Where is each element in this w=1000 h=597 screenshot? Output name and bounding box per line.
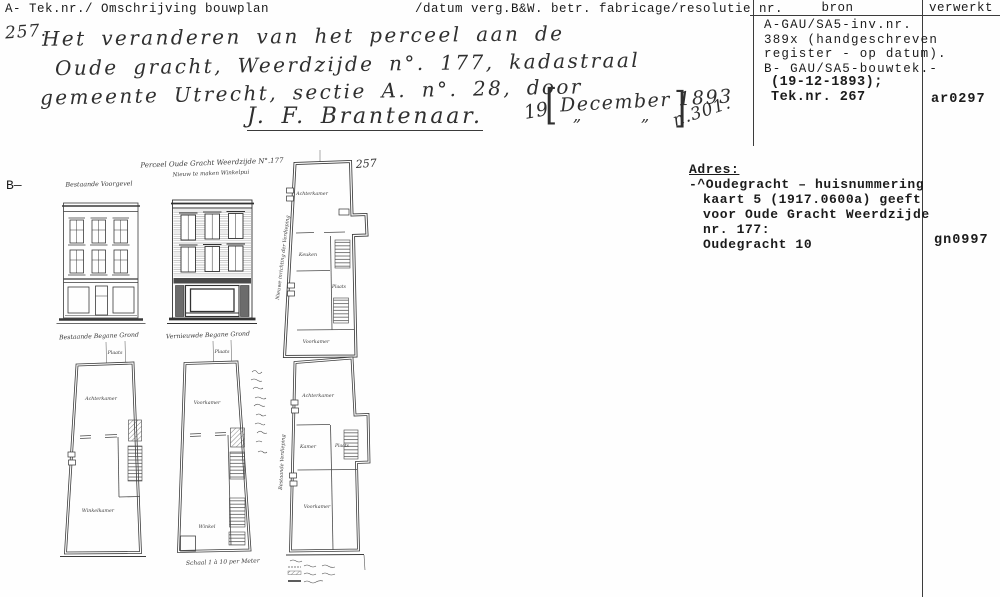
facade-new xyxy=(167,200,257,324)
facade-new-windows-row1 xyxy=(179,212,245,241)
archive-card: A- Tek.nr./ Omschrijving bouwplan /datum… xyxy=(0,0,1000,597)
caption-plan-existing: Bestaande Begane Grond xyxy=(58,332,139,342)
facade-new-shopfront xyxy=(174,278,252,317)
room-label: Achterkamer xyxy=(84,396,117,402)
bron-line: B- GAU/SA5-bouwtek.- xyxy=(764,62,947,77)
handwritten-scribbles xyxy=(251,371,267,454)
adres-block: Adres: -^Oudegracht – huisnummering kaar… xyxy=(689,162,930,252)
adres-line: voor Oude Gracht Weerdzijde xyxy=(689,207,930,222)
plan-ground-existing: Plaats Achterkamer Winkelkamer xyxy=(60,341,146,557)
handwritten-signature: J. F. Brantenaar. xyxy=(247,104,483,131)
room-label: Plaats xyxy=(331,284,347,290)
drawing-sheet: Bestaande Voorgevel xyxy=(0,145,410,597)
adres-heading: Adres: xyxy=(689,162,930,177)
ditto-mark-2: „ xyxy=(641,106,649,125)
drawing-legend xyxy=(288,560,335,583)
bron-line-bold: (19-12-1893); xyxy=(764,76,947,91)
plan-upper-storey: Achterkamer Keuken Plaats Voorkamer Nieu… xyxy=(275,150,367,357)
plan-upper-existing: Achterkamer Kamer Plaats Voorkamer xyxy=(286,358,369,570)
sheet-number-handwritten: 257 xyxy=(354,157,377,172)
room-label: Winkel xyxy=(199,524,216,530)
column-header-bron: bron xyxy=(753,1,922,15)
room-label: Keuken xyxy=(298,252,317,258)
room-label: Achterkamer xyxy=(295,191,328,197)
room-label: Achterkamer xyxy=(301,393,334,399)
facade-existing-windows-row1 xyxy=(68,218,130,245)
adres-line: nr. 177: xyxy=(689,222,930,237)
verwerkt-code-b: gn0997 xyxy=(934,233,989,248)
scale-note: Schaal 1 à 10 per Meter xyxy=(186,557,261,567)
header-left: A- Tek.nr./ Omschrijving bouwplan xyxy=(5,2,269,16)
facade-existing xyxy=(57,203,146,324)
verwerkt-code-a: ar0297 xyxy=(931,92,986,107)
header-underline xyxy=(750,15,1000,16)
room-label: Voorkamer xyxy=(304,504,331,510)
bron-line-bold: Tek.nr. 267 xyxy=(764,91,947,106)
plan-ground-renewed: Plaats Voorkamer Winkel Schaal 1 à 10 pe… xyxy=(179,340,261,567)
header-middle: /datum verg.B&W. betr. fabricage/resolut… xyxy=(415,2,783,16)
column-header-verwerkt: verwerkt xyxy=(922,1,1000,15)
room-label: Winkelkamer xyxy=(82,508,115,514)
plaats-label: Plaats xyxy=(214,349,230,355)
caption-facade-existing: Bestaande Voorgevel xyxy=(64,180,132,188)
plaats-label: Plaats xyxy=(107,350,123,356)
divider-bron-left xyxy=(753,0,754,146)
plan-bottom-vertical-label: Bestaande Verdieping xyxy=(278,434,287,491)
room-label: Plaats xyxy=(334,443,350,449)
bron-line: 389x (handgeschreven xyxy=(764,33,947,48)
bracket-open: [ xyxy=(545,80,557,129)
drawing-title: Perceel Oude Gracht Weerdzijde N°.177 xyxy=(139,156,284,169)
bron-line: A-GAU/SA5-inv.nr. xyxy=(764,18,947,33)
room-label: Voorkamer xyxy=(303,339,330,345)
ditto-mark-1: „ xyxy=(573,106,581,125)
facade-existing-windows-row2 xyxy=(68,250,130,275)
adres-line: Oudegracht 10 xyxy=(689,237,930,252)
adres-line: kaart 5 (1917.0600a) geeft xyxy=(689,192,930,207)
facade-existing-shopfront xyxy=(64,279,139,316)
adres-line: -^Oudegracht – huisnummering xyxy=(689,177,930,192)
room-label: Kamer xyxy=(299,444,317,450)
caption-plan-new: Vernieuwde Begane Grond xyxy=(166,331,250,341)
room-label: Voorkamer xyxy=(194,400,221,406)
drawing-subtitle: Nieuw te maken Winkelpui xyxy=(172,170,250,179)
bron-line: register - op datum). xyxy=(764,47,947,62)
handwritten-line-1: Het veranderen van het perceel aan de xyxy=(42,21,565,50)
facade-new-windows-row2 xyxy=(179,244,245,272)
bron-block: A-GAU/SA5-inv.nr. 389x (handgeschreven r… xyxy=(764,18,947,106)
